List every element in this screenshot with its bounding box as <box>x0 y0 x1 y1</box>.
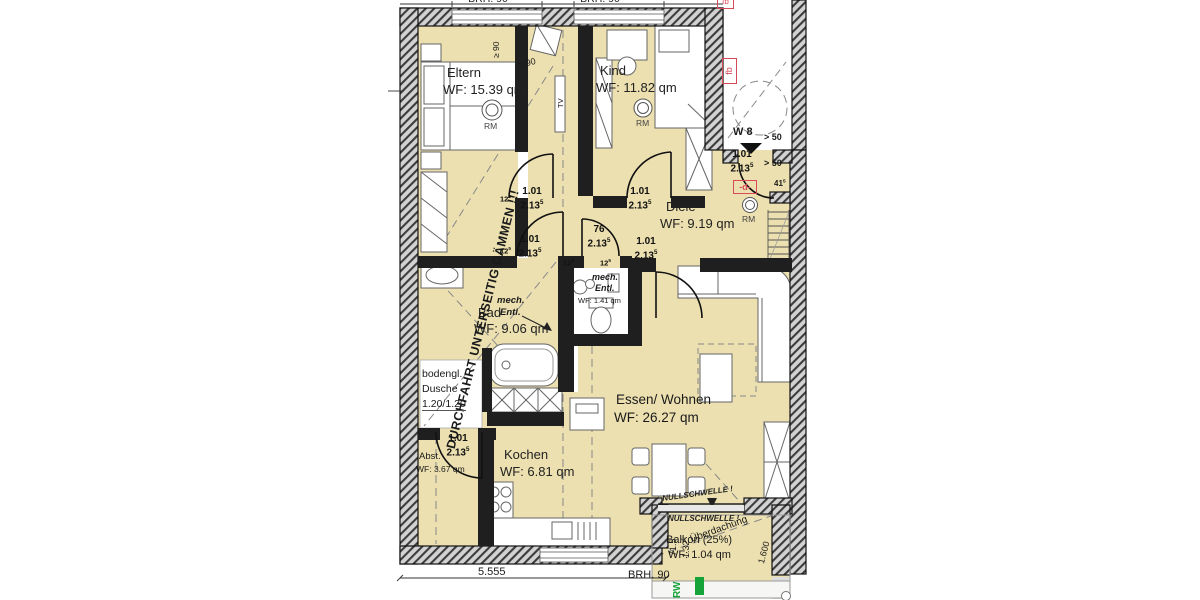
door-size-bad: 1.012.135 <box>507 234 553 259</box>
wall-mark-1: 125 <box>500 194 511 204</box>
door-size-entrance: 1.012.135 <box>719 149 765 174</box>
tag-fb-top: fb <box>717 0 734 9</box>
wall-mark-4: 125 <box>600 258 611 268</box>
room-name-kind: Kind <box>600 64 626 79</box>
balcony-dim-71: 71.5 <box>668 538 678 556</box>
dim-41: 415 <box>774 179 786 188</box>
brh-bottom: BRH. 90 <box>628 569 670 582</box>
door-size-kind: 1.012.135 <box>617 186 663 211</box>
room-area-eltern: WF: 15.39 qm <box>443 83 525 98</box>
tag-fb: fb <box>722 58 737 84</box>
floorplan-page: Eltern WF: 15.39 qm Kind WF: 11.82 qm Di… <box>0 0 1200 600</box>
rw-downpipe-label: RW <box>672 582 684 598</box>
rm-label-eltern: RM <box>484 122 497 132</box>
bad-vent-label-1: mech. <box>497 296 524 307</box>
door-size-eltern: 1.012.135 <box>509 186 555 211</box>
brh-top-2: BRH. 90 <box>570 0 630 5</box>
wall-mark-2: 125 <box>500 246 511 256</box>
shower-label-2: Dusche <box>422 383 458 395</box>
tv-mark: TV <box>557 98 566 108</box>
wc-area: WF: 1.41 qm <box>578 297 621 306</box>
room-area-kochen: WF: 6.81 qm <box>500 465 574 480</box>
min90-mark: ≥ 90 <box>492 42 502 58</box>
room-name-eltern: Eltern <box>447 66 481 81</box>
tag-d: -d- <box>733 180 757 194</box>
door-size-wc: 762.135 <box>576 224 622 249</box>
unit-number: W 8 <box>733 126 753 139</box>
door-size-abst: 1.012.135 <box>435 433 481 458</box>
clearance-mark-1: > 50 <box>764 132 782 142</box>
room-name-wohnen: Essen/ Wohnen <box>616 392 711 408</box>
room-name-kochen: Kochen <box>504 448 548 463</box>
wc-vent-label-2: Entl. <box>595 283 615 293</box>
wall-mark-3: 125 <box>563 258 574 268</box>
door-size-wohnen: 1.012.135 <box>623 236 669 261</box>
total-width-dim: 5.555 <box>478 566 506 579</box>
balcony-dim-32: 1.325 <box>681 537 691 558</box>
wc-vent-label-1: mech. <box>592 272 618 282</box>
room-name-diele: Diele <box>666 200 696 215</box>
room-area-diele: WF: 9.19 qm <box>660 217 734 232</box>
clearance-mark-2: > 50 <box>764 158 782 168</box>
room-area-wohnen: WF: 26.27 qm <box>614 410 699 426</box>
rm-label-entrance: RM <box>742 215 755 225</box>
brh-top-1: BRH. 90 <box>458 0 518 5</box>
bad-vent-label-2: Entl. <box>500 308 521 319</box>
rm-label-kind: RM <box>636 119 649 129</box>
shower-label-3: 1.20/1.20 <box>422 398 466 411</box>
shower-label-1: bodengl. <box>422 368 462 380</box>
room-area-kind: WF: 11.82 qm <box>596 81 677 96</box>
